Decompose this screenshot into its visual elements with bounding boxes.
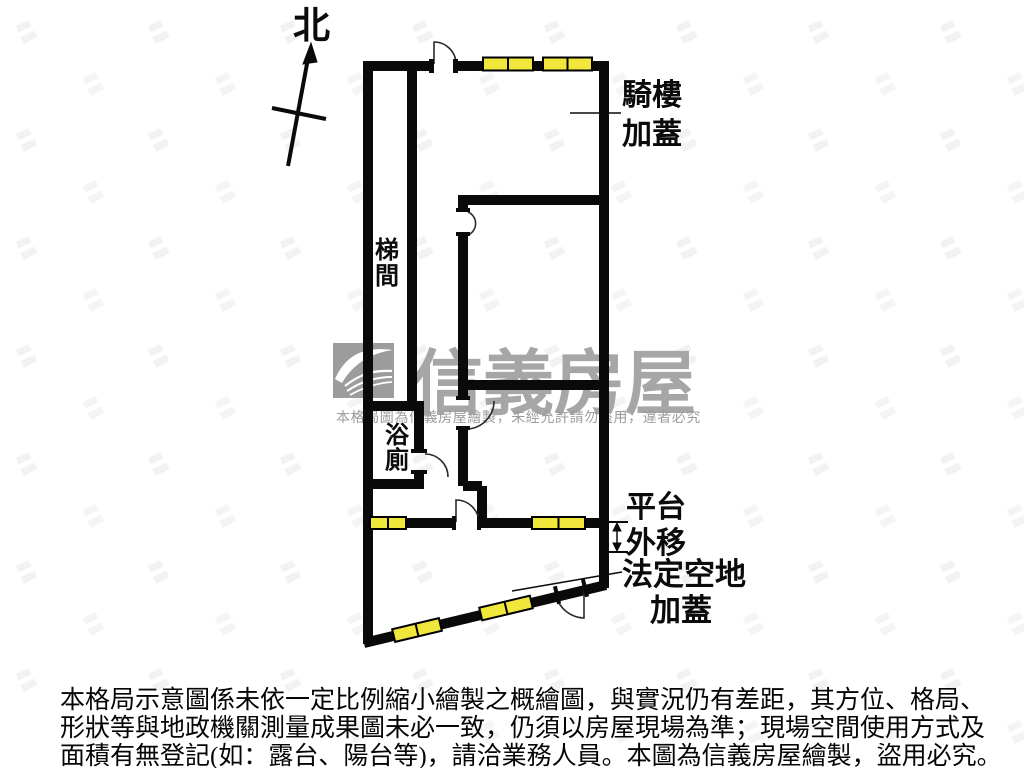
legal-space-label: 法定空地 <box>622 556 746 593</box>
platform-dimension-arrow <box>607 522 628 552</box>
door-bottom-wall <box>456 500 479 523</box>
window-slanted-right <box>479 596 533 621</box>
door-bathroom <box>425 454 448 477</box>
window-top-right <box>543 58 592 71</box>
stairwell-label: 梯間 <box>372 238 402 290</box>
window-top-left <box>483 58 533 71</box>
window-mid-right <box>532 517 585 529</box>
disclaimer-line-3: 面積有無登記(如：露台、陽台等)，請洽業務人員。本圖為信義房屋繪製，盜用必究。 <box>60 736 1002 768</box>
bathroom-label: 浴廁 <box>382 424 412 474</box>
door-top-entry <box>434 42 456 64</box>
window-mid-left <box>370 517 406 529</box>
floor-plan-page: 信義房屋 本格局圖為信義房屋繪製，未經允許請勿盜用，違者必究 <box>0 0 1024 768</box>
arcade-line-1: 騎樓 <box>622 76 682 115</box>
windows <box>370 58 592 642</box>
outer-walls <box>363 61 609 644</box>
window-slanted-left <box>392 618 442 642</box>
arcade-annotation: 騎樓 加蓋 <box>622 76 682 154</box>
north-label: 北 <box>293 5 330 49</box>
doors <box>425 42 584 618</box>
platform-annotation: 平台 外移 <box>626 490 686 562</box>
door-room-upper <box>468 212 476 235</box>
north-arrow <box>272 43 326 166</box>
arcade-line-2: 加蓋 <box>622 115 682 154</box>
platform-line-1: 平台 <box>626 490 686 526</box>
floor-plan-drawing <box>0 0 1024 768</box>
door-room-lower <box>466 401 494 429</box>
legal-space-label-2: 加蓋 <box>650 592 712 629</box>
